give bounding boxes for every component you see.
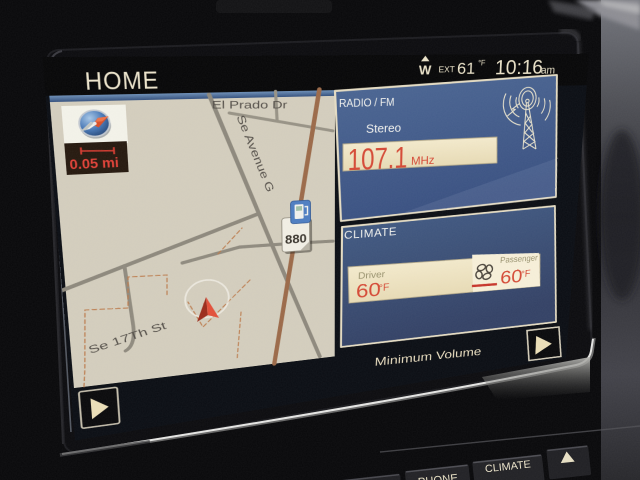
svg-text:0.05 mi: 0.05 mi (69, 155, 119, 172)
svg-text:El Prado Dr: El Prado Dr (212, 98, 288, 111)
svg-text:°F: °F (478, 59, 486, 68)
svg-text:880: 880 (285, 231, 307, 247)
svg-text:10:16: 10:16 (494, 56, 543, 79)
svg-text:Stereo: Stereo (366, 123, 401, 137)
svg-text:60: 60 (356, 278, 381, 302)
svg-text:°F: °F (379, 282, 390, 293)
svg-text:RADIO / FM: RADIO / FM (339, 96, 395, 110)
svg-text:EXT: EXT (438, 65, 455, 75)
svg-text:60: 60 (500, 265, 523, 288)
svg-text:61: 61 (457, 59, 476, 78)
svg-text:HOME: HOME (84, 66, 160, 96)
svg-text:MHz: MHz (411, 155, 435, 168)
svg-text:°F: °F (521, 268, 531, 279)
svg-text:W: W (419, 63, 432, 78)
svg-text:107.1: 107.1 (348, 141, 408, 177)
